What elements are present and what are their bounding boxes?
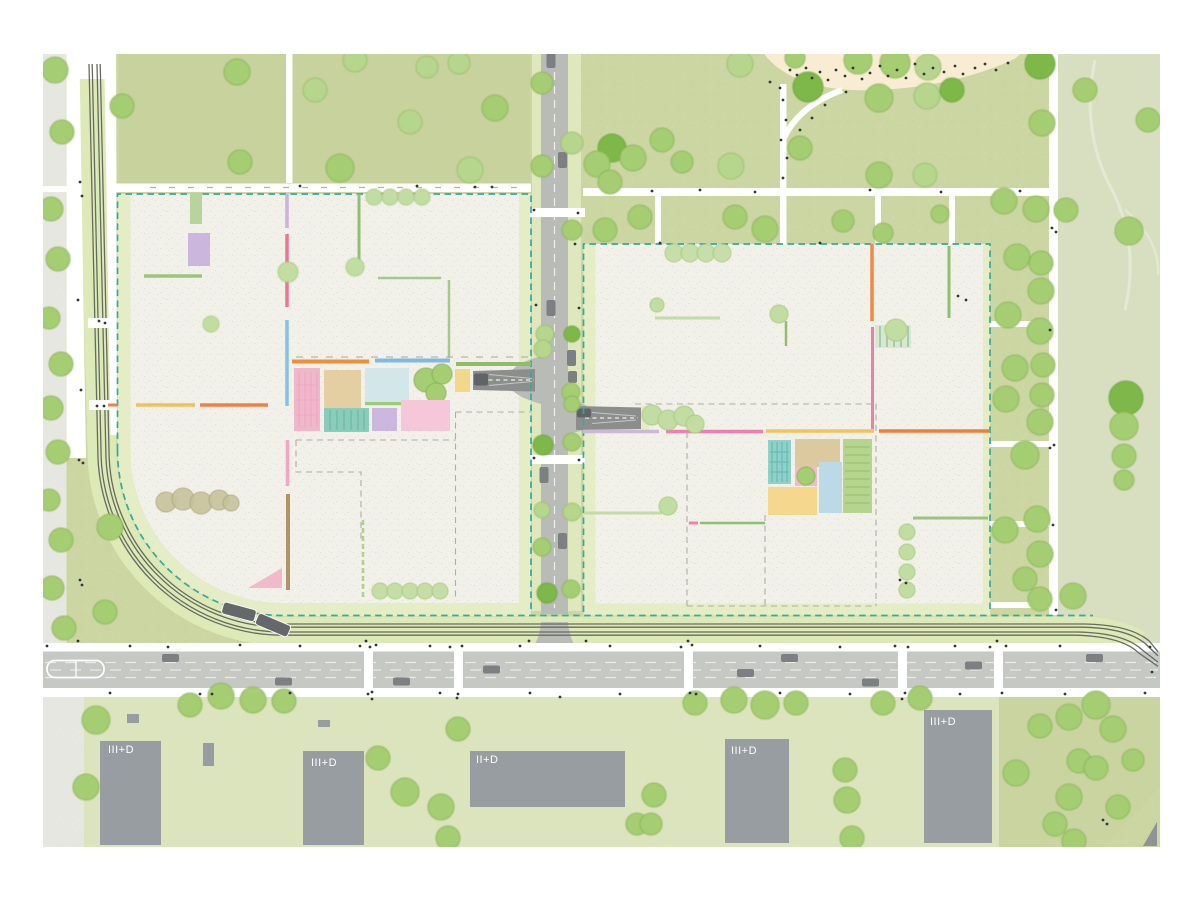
svg-text:III+D: III+D (311, 757, 337, 769)
svg-text:III+D: III+D (930, 716, 956, 728)
svg-text:II+D: II+D (476, 754, 498, 766)
svg-text:III+D: III+D (108, 744, 134, 756)
svg-text:III+D: III+D (731, 745, 757, 757)
